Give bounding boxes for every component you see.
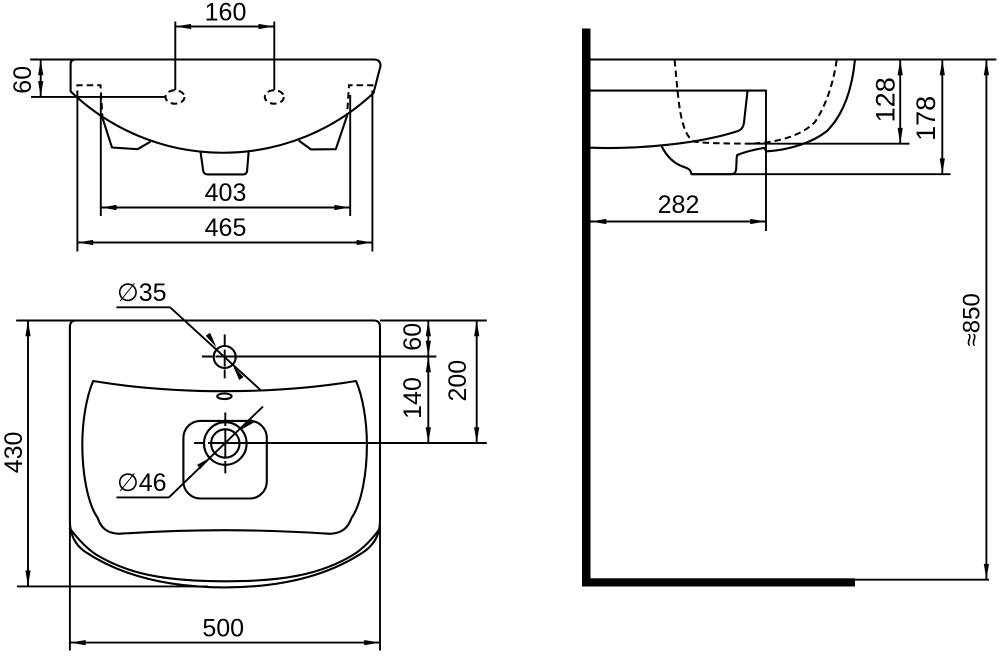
svg-text:≈850: ≈850	[959, 293, 986, 346]
svg-text:430: 430	[0, 432, 28, 474]
svg-text:403: 403	[205, 179, 247, 207]
svg-text:160: 160	[205, 0, 247, 27]
svg-text:140: 140	[399, 377, 427, 419]
svg-text:60: 60	[399, 323, 427, 351]
svg-text:128: 128	[871, 77, 901, 122]
svg-text:178: 178	[911, 96, 941, 141]
svg-text:500: 500	[202, 615, 244, 643]
svg-text:∅46: ∅46	[117, 469, 167, 497]
svg-text:∅35: ∅35	[117, 279, 167, 307]
svg-text:200: 200	[444, 360, 472, 402]
svg-text:60: 60	[9, 66, 37, 94]
svg-text:465: 465	[205, 214, 247, 242]
svg-text:282: 282	[658, 191, 700, 219]
